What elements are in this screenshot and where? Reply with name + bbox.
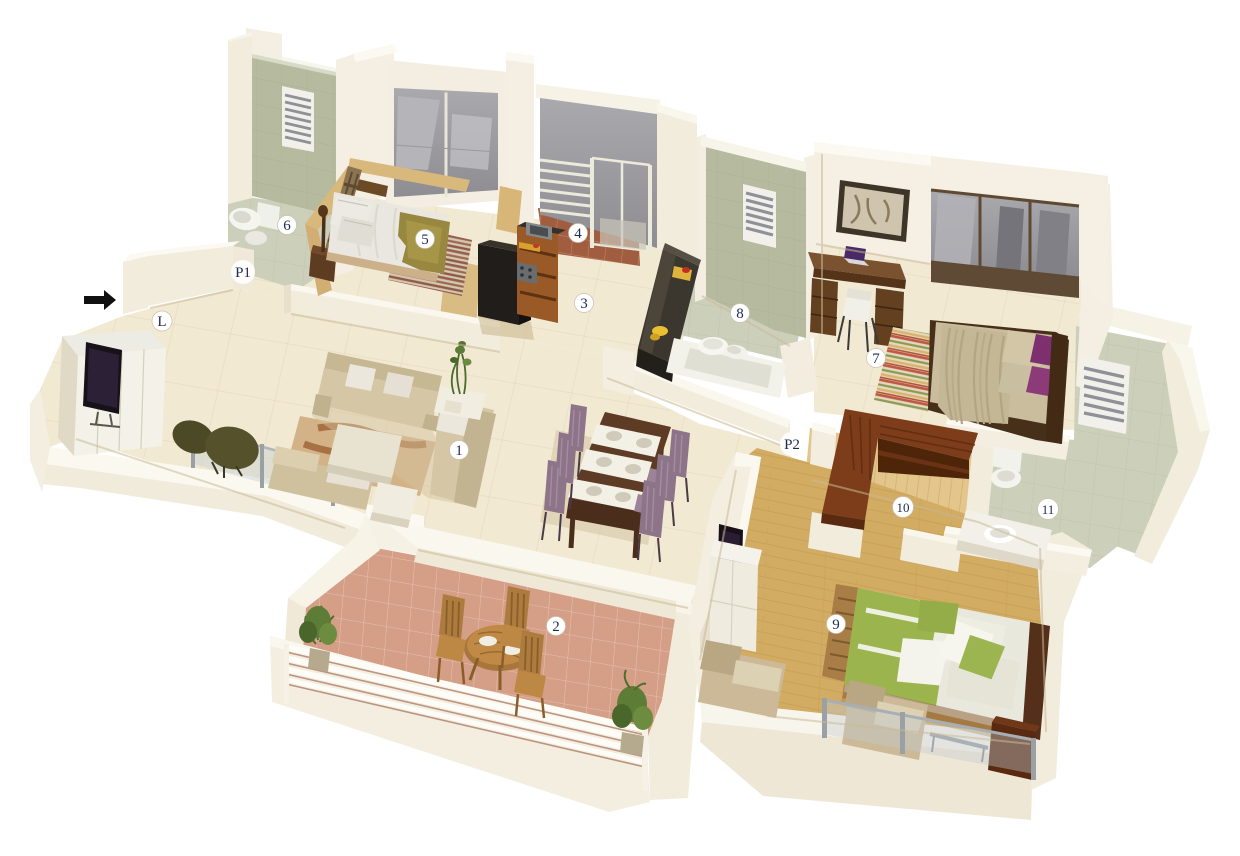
svg-text:P2: P2: [784, 437, 800, 453]
svg-text:4: 4: [574, 226, 582, 242]
svg-text:1: 1: [455, 443, 463, 459]
svg-text:11: 11: [1042, 502, 1055, 517]
svg-text:6: 6: [283, 218, 291, 234]
svg-text:P1: P1: [235, 265, 251, 281]
svg-text:8: 8: [736, 306, 744, 322]
svg-text:7: 7: [872, 351, 880, 367]
svg-text:L: L: [157, 314, 166, 330]
svg-text:5: 5: [421, 232, 429, 248]
svg-text:3: 3: [580, 296, 588, 312]
svg-text:10: 10: [897, 500, 910, 515]
svg-text:2: 2: [552, 619, 560, 635]
svg-text:9: 9: [832, 617, 840, 633]
